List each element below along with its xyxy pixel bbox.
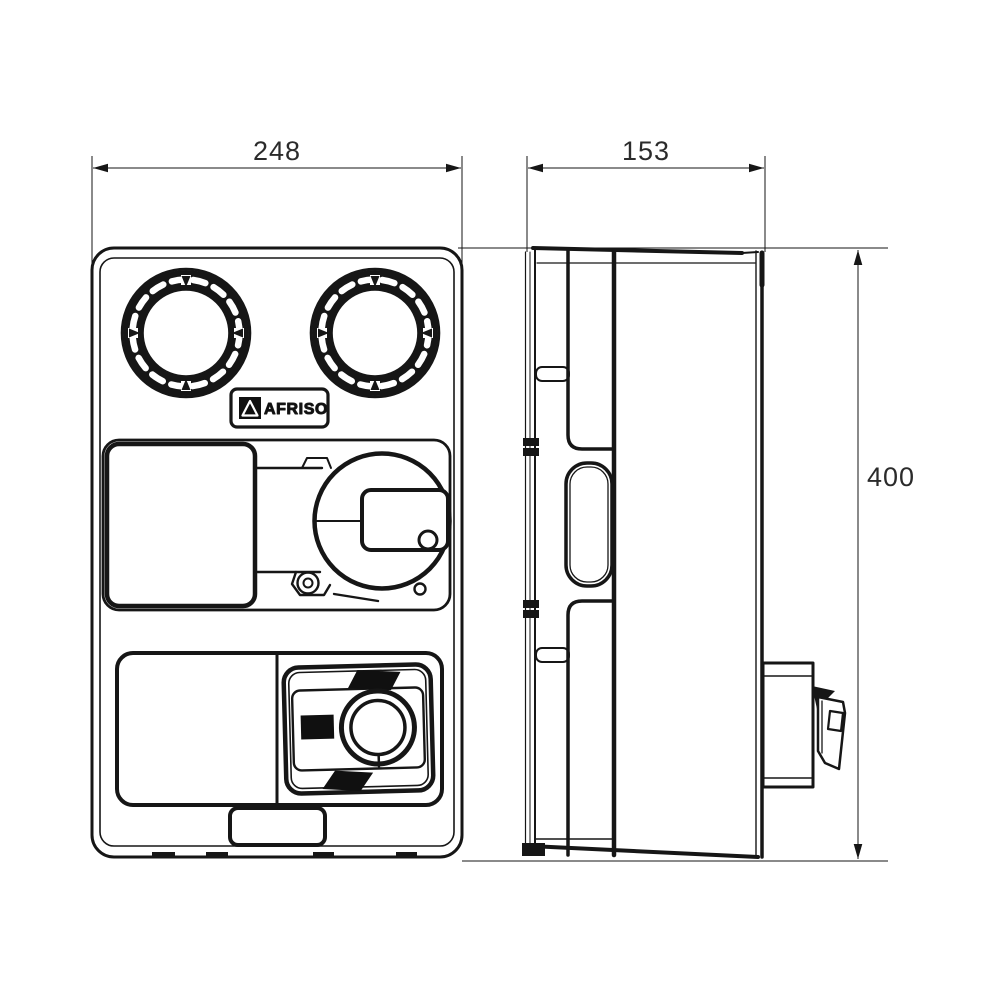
bottom-panel <box>117 653 442 805</box>
side-cover-upper-edge <box>568 250 612 449</box>
side-bottom-edge <box>530 846 758 857</box>
side-rail-lower <box>536 648 569 662</box>
dim-label-height: 400 <box>867 462 915 492</box>
controller-display <box>301 715 335 740</box>
controller-unit <box>283 664 433 794</box>
side-rail-upper <box>536 367 569 381</box>
dim-label-side-depth: 153 <box>622 136 670 166</box>
thermometer-dial-right <box>311 269 439 397</box>
technical-drawing: 248 153 400 <box>0 0 1000 1000</box>
middle-panel <box>103 440 450 610</box>
brand-logo-text: AFRISO <box>264 401 328 418</box>
pump-screw <box>419 531 437 549</box>
side-cover-lower-edge <box>568 601 612 855</box>
side-valve-actuator <box>763 663 845 787</box>
side-handle-recess <box>566 463 612 586</box>
side-view <box>522 248 845 857</box>
side-top-edge <box>533 248 742 253</box>
front-view: AFRISO <box>92 248 462 857</box>
thermometer-dial-left <box>122 269 250 397</box>
nameplate <box>230 808 325 845</box>
dim-label-front-width: 248 <box>253 136 301 166</box>
drawing-canvas: 248 153 400 <box>0 0 1000 1000</box>
